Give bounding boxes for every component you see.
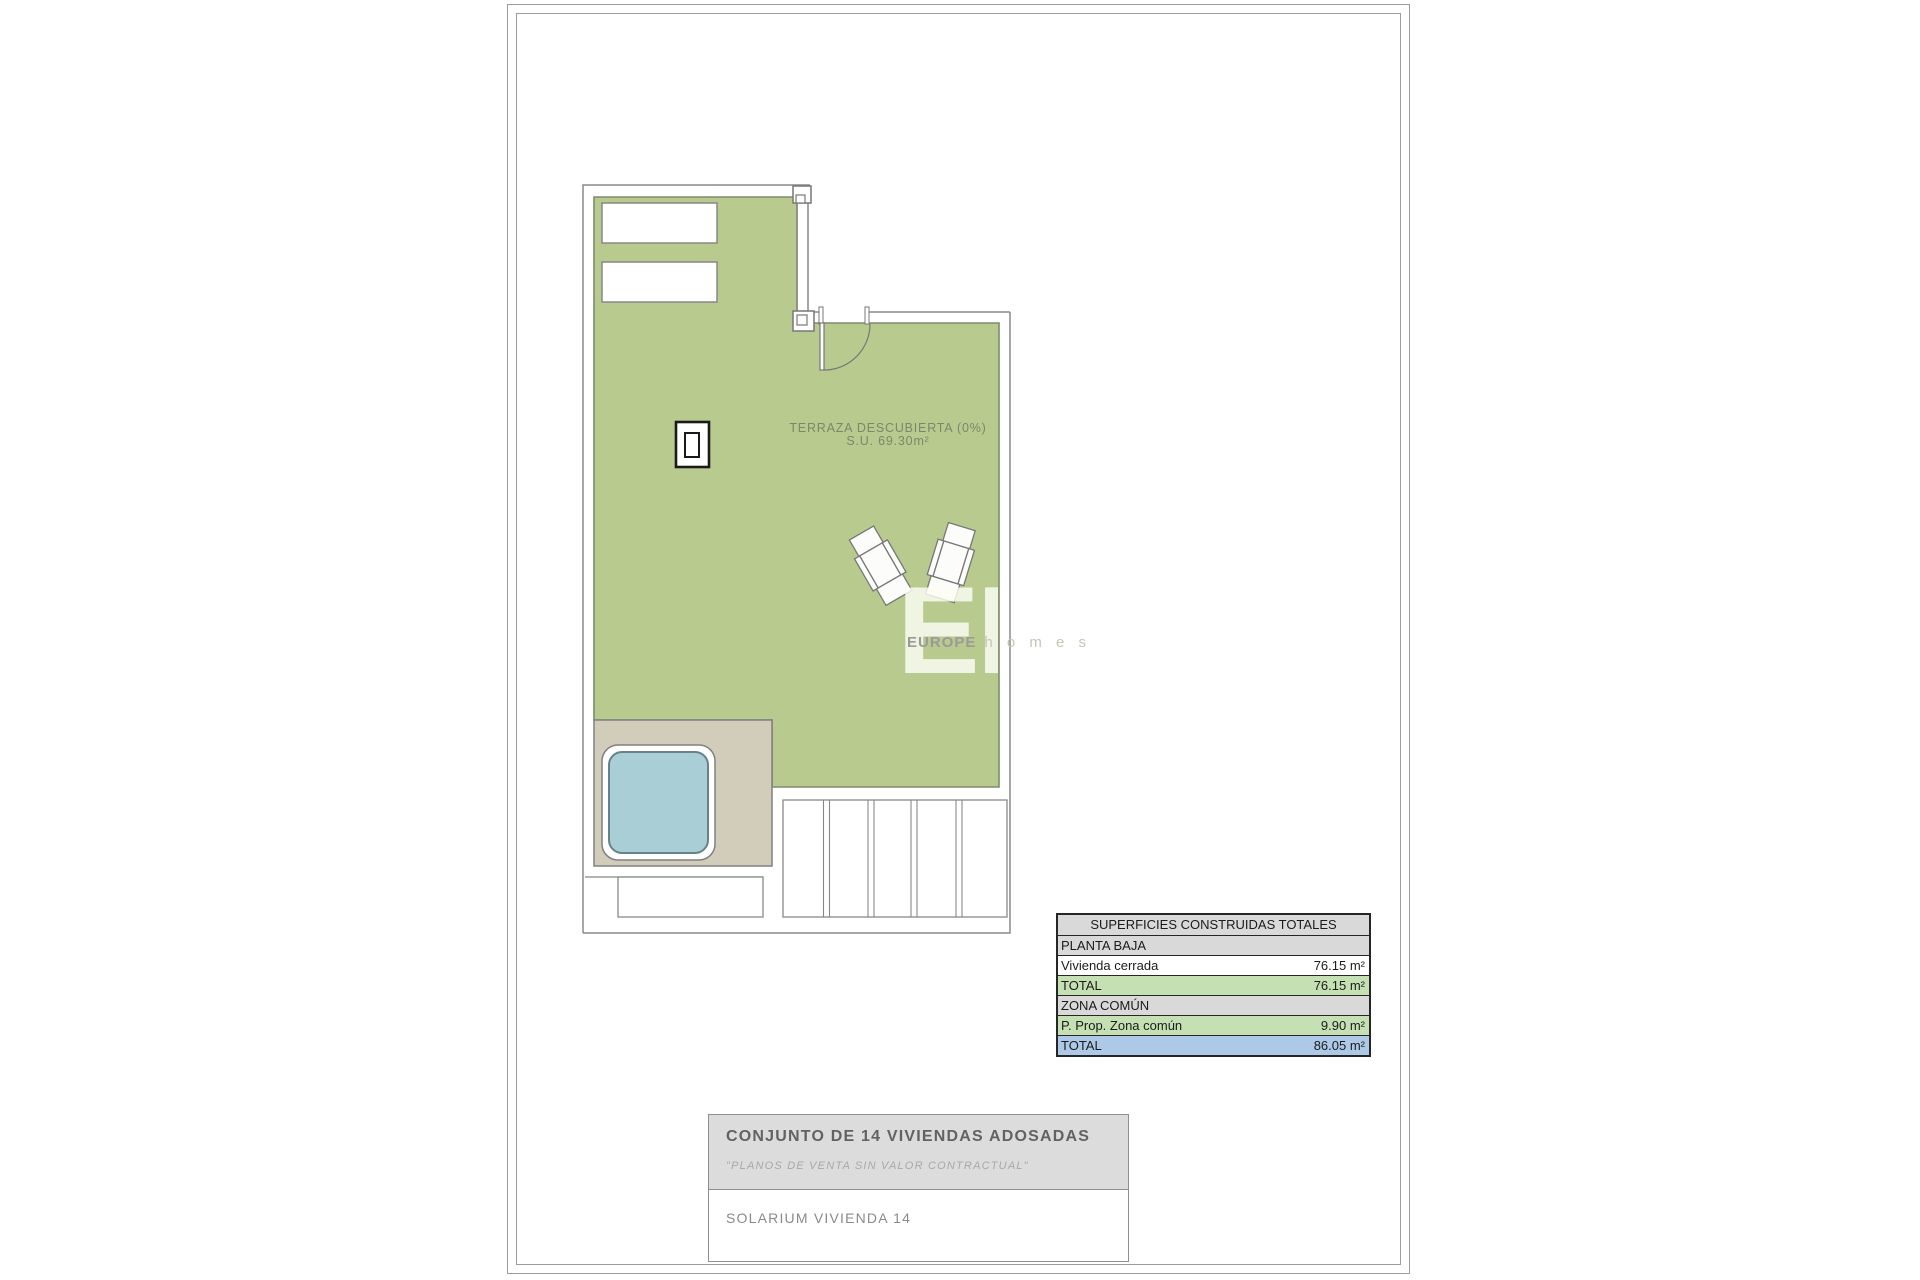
row-value: 76.15 m² [1314,956,1365,975]
project-title: CONJUNTO DE 14 VIVIENDAS ADOSADAS [709,1115,1128,1146]
pergola-opening-2 [602,262,717,302]
table-row-vivienda-cerrada: Vivienda cerrada 76.15 m² [1058,955,1369,975]
pool-water [609,752,708,853]
table-row-total-general: TOTAL 86.05 m² [1058,1035,1369,1055]
column-mid [793,311,814,331]
plan-sheet-page: TERRAZA DESCUBIERTA (0%) S.U. 69.30m² EH… [0,0,1920,1280]
row-label: PLANTA BAJA [1061,936,1146,955]
title-block-header: CONJUNTO DE 14 VIVIENDAS ADOSADAS "PLANO… [709,1115,1128,1190]
table-row-planta-baja: PLANTA BAJA [1058,935,1369,955]
row-label: Vivienda cerrada [1061,956,1158,975]
table-row-zona-comun: ZONA COMÚN [1058,995,1369,1015]
title-block: CONJUNTO DE 14 VIVIENDAS ADOSADAS "PLANO… [708,1114,1129,1262]
column-top [793,186,811,203]
table-row-p-prop-zona-comun: P. Prop. Zona común 9.90 m² [1058,1015,1369,1035]
disclaimer-text: "PLANOS DE VENTA SIN VALOR CONTRACTUAL" [709,1146,1128,1172]
areas-table: SUPERFICIES CONSTRUIDAS TOTALES PLANTA B… [1056,913,1371,1057]
slat-panels [783,800,1007,917]
shaft-symbol [676,422,709,467]
row-label: TOTAL [1061,976,1102,995]
row-label: ZONA COMÚN [1061,996,1149,1015]
table-row-total-planta: TOTAL 76.15 m² [1058,975,1369,995]
row-label: TOTAL [1061,1036,1102,1055]
lower-step [585,877,763,917]
row-label: P. Prop. Zona común [1061,1016,1182,1035]
watermark-brand: EUROPEh o m e s [907,634,1091,651]
row-value: 76.15 m² [1314,976,1365,995]
title-block-body: SOLARIUM VIVIENDA 14 [709,1190,1128,1226]
terrace-label: TERRAZA DESCUBIERTA (0%) [789,421,986,435]
watermark-brand-primary: EUROPE [907,634,976,651]
pergola-opening-1 [602,203,717,243]
areas-table-title: SUPERFICIES CONSTRUIDAS TOTALES [1058,915,1369,935]
row-value: 9.90 m² [1321,1016,1365,1035]
sheet-name: SOLARIUM VIVIENDA 14 [709,1190,1128,1226]
row-value: 86.05 m² [1314,1036,1365,1055]
terrace-area-label: S.U. 69.30m² [846,434,929,448]
watermark-brand-secondary: h o m e s [984,634,1091,651]
